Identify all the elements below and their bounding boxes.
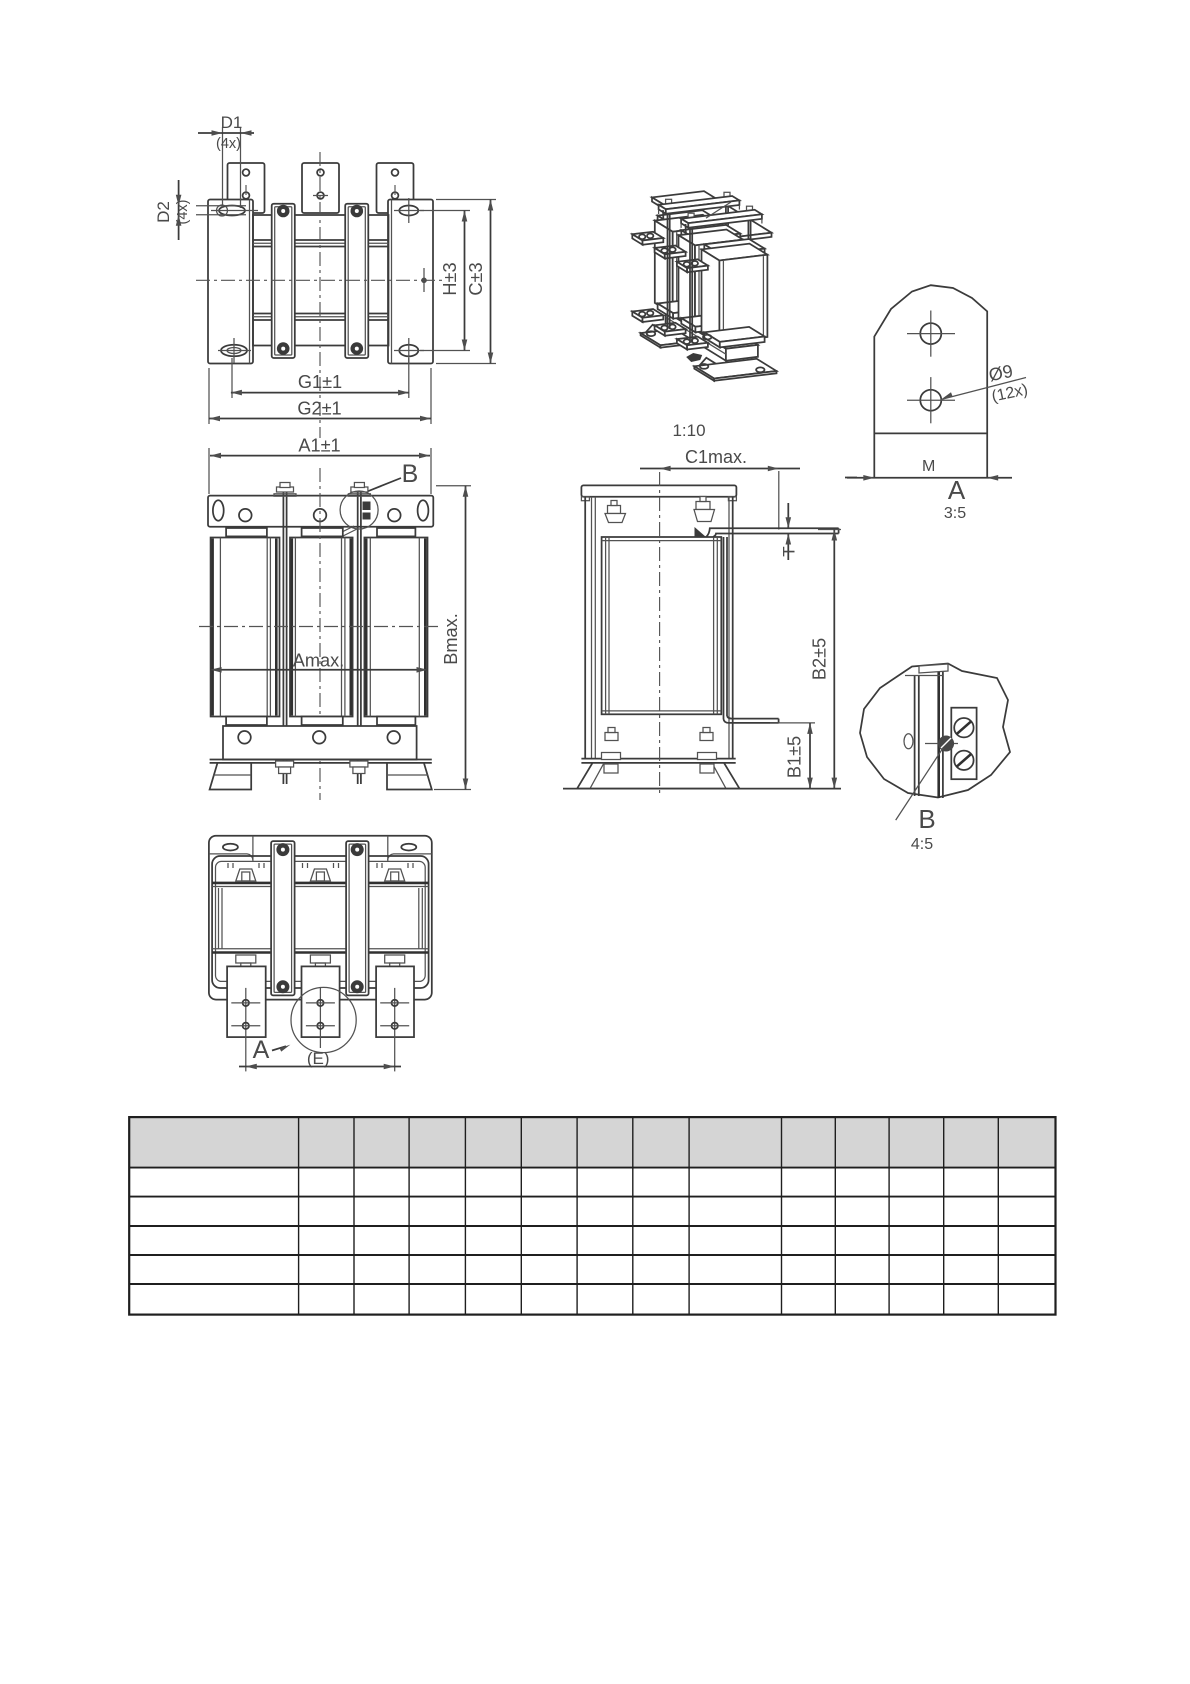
svg-text:M: M bbox=[922, 458, 935, 475]
svg-text:B2±5: B2±5 bbox=[810, 638, 830, 680]
svg-text:A: A bbox=[948, 475, 966, 505]
svg-text:(E): (E) bbox=[307, 1049, 330, 1068]
svg-text:(4x): (4x) bbox=[175, 200, 191, 225]
svg-text:A: A bbox=[253, 1036, 270, 1064]
svg-text:H±3: H±3 bbox=[440, 262, 460, 295]
svg-text:D2: D2 bbox=[154, 201, 173, 223]
svg-text:T: T bbox=[780, 546, 799, 556]
svg-text:4:5: 4:5 bbox=[911, 836, 933, 853]
svg-text:B1±5: B1±5 bbox=[785, 736, 805, 778]
svg-text:3:5: 3:5 bbox=[944, 505, 966, 522]
svg-text:Amax.: Amax. bbox=[293, 651, 345, 671]
svg-text:C1max.: C1max. bbox=[685, 447, 747, 467]
svg-text:1:10: 1:10 bbox=[672, 421, 705, 440]
svg-text:C±3: C±3 bbox=[466, 262, 486, 295]
svg-text:D1: D1 bbox=[221, 113, 243, 132]
svg-text:Bmax.: Bmax. bbox=[441, 613, 461, 665]
svg-text:G2±1: G2±1 bbox=[297, 399, 341, 419]
svg-text:B: B bbox=[918, 804, 935, 834]
svg-text:A1±1: A1±1 bbox=[298, 436, 340, 456]
svg-text:G1±1: G1±1 bbox=[298, 372, 342, 392]
svg-text:(4x): (4x) bbox=[216, 136, 241, 152]
svg-text:B: B bbox=[402, 460, 419, 488]
